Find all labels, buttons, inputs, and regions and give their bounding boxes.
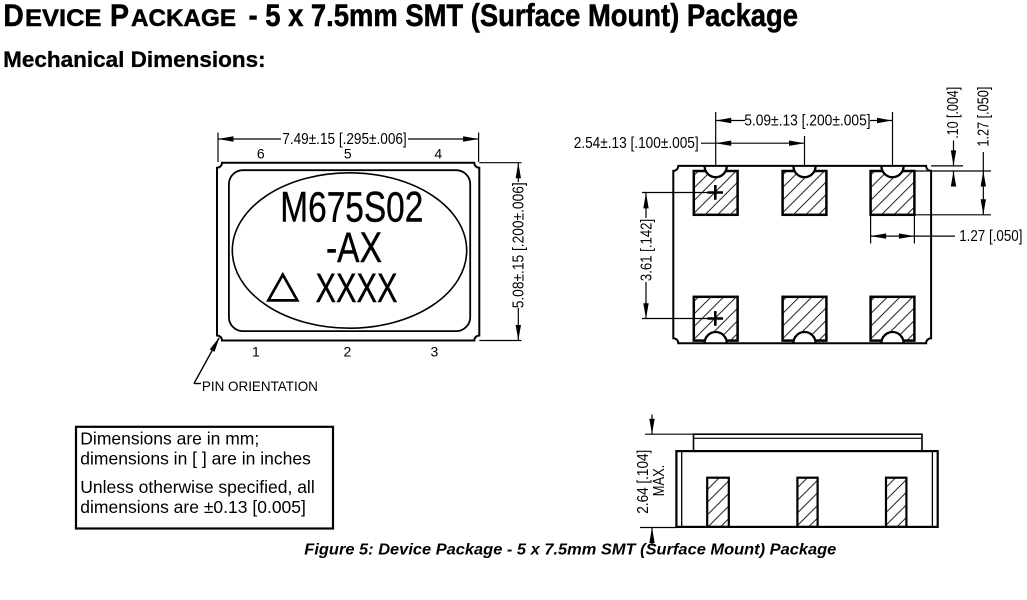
svg-text:5.09±.13 [.200±.005]: 5.09±.13 [.200±.005] <box>744 112 870 129</box>
svg-text:1.27 [.050]: 1.27 [.050] <box>959 228 1022 245</box>
svg-text:2.64 [.104]: 2.64 [.104] <box>635 450 652 514</box>
svg-text:3: 3 <box>431 344 439 360</box>
svg-text:1: 1 <box>252 344 260 360</box>
svg-text:D: D <box>3 0 23 33</box>
svg-text:2.54±.13 [.100±.005]: 2.54±.13 [.100±.005] <box>574 135 699 152</box>
svg-text:- 5 x 7.5mm SMT (Surface Mount: - 5 x 7.5mm SMT (Surface Mount) Package <box>249 0 799 33</box>
svg-text:Mechanical Dimensions:: Mechanical Dimensions: <box>3 47 266 72</box>
svg-text:PIN ORIENTATION: PIN ORIENTATION <box>202 378 318 394</box>
svg-text:ACKAGE: ACKAGE <box>131 5 236 32</box>
svg-text:dimensions are ±0.13 [0.005]: dimensions are ±0.13 [0.005] <box>80 497 306 517</box>
svg-text:MAX.: MAX. <box>651 465 668 497</box>
svg-text:EVICE: EVICE <box>25 5 102 32</box>
svg-text:1.27 [.050]: 1.27 [.050] <box>975 87 992 147</box>
svg-text:dimensions in [ ] are in inche: dimensions in [ ] are in inches <box>80 448 311 468</box>
svg-text:2: 2 <box>344 344 352 360</box>
svg-text:Unless otherwise specified, al: Unless otherwise specified, all <box>80 477 314 497</box>
svg-text:Figure 5: Device Package - 5 x: Figure 5: Device Package - 5 x 7.5mm SMT… <box>304 541 836 558</box>
svg-text:3.61 [.142]: 3.61 [.142] <box>638 219 655 281</box>
svg-text:.10 [.004]: .10 [.004] <box>945 87 962 139</box>
svg-text:Dimensions are in mm;: Dimensions are in mm; <box>80 428 259 448</box>
svg-text:P: P <box>110 0 129 33</box>
svg-text:5.08±.15 [.200±.006]: 5.08±.15 [.200±.006] <box>511 182 528 308</box>
svg-text:5: 5 <box>344 145 352 161</box>
svg-text:XXXX: XXXX <box>316 265 398 311</box>
svg-text:6: 6 <box>257 145 265 161</box>
svg-text:4: 4 <box>434 145 442 161</box>
